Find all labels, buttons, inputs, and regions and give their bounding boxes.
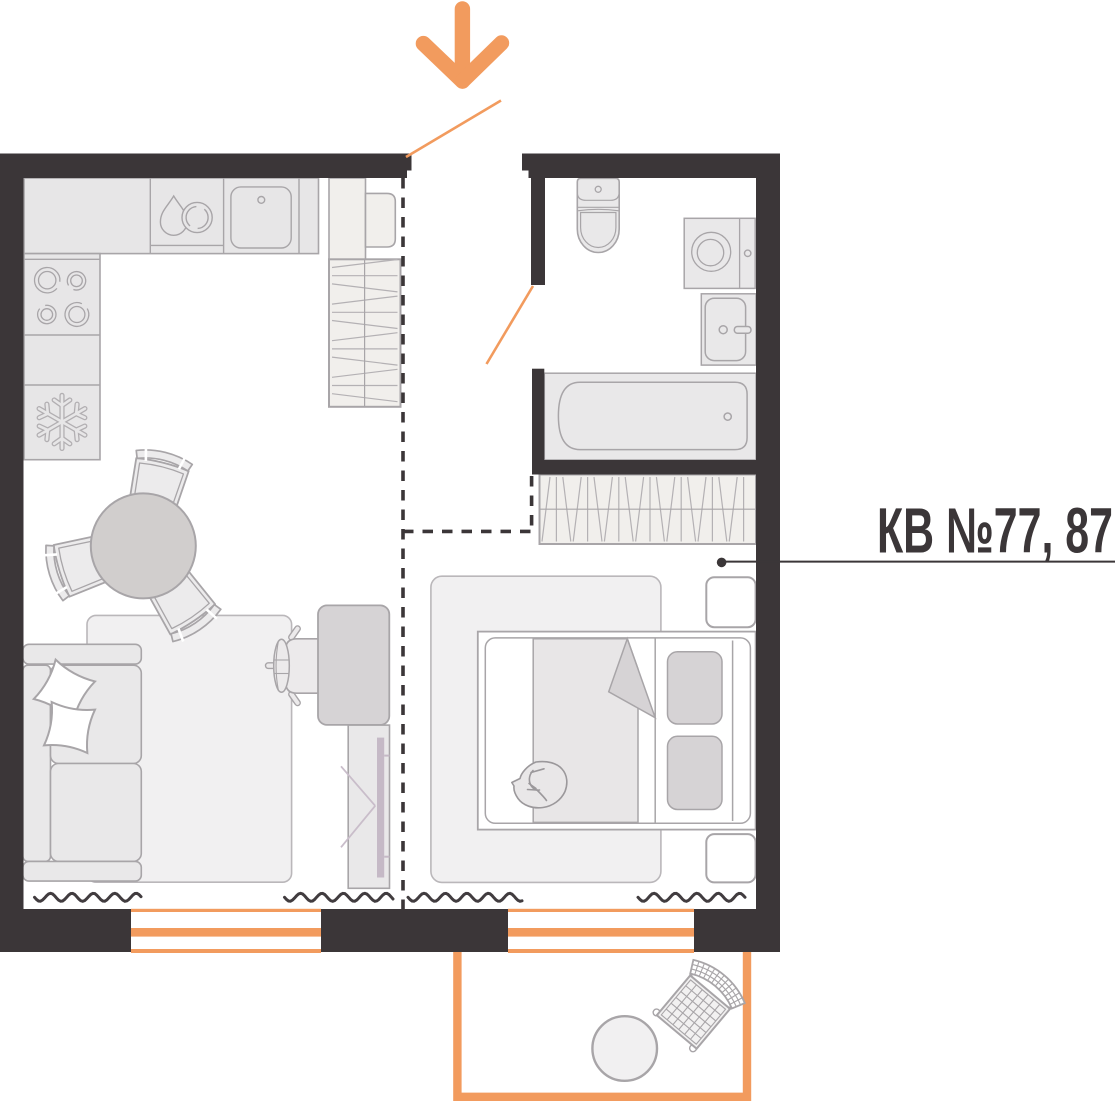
- svg-text:КВ №77, 87: КВ №77, 87: [877, 495, 1113, 567]
